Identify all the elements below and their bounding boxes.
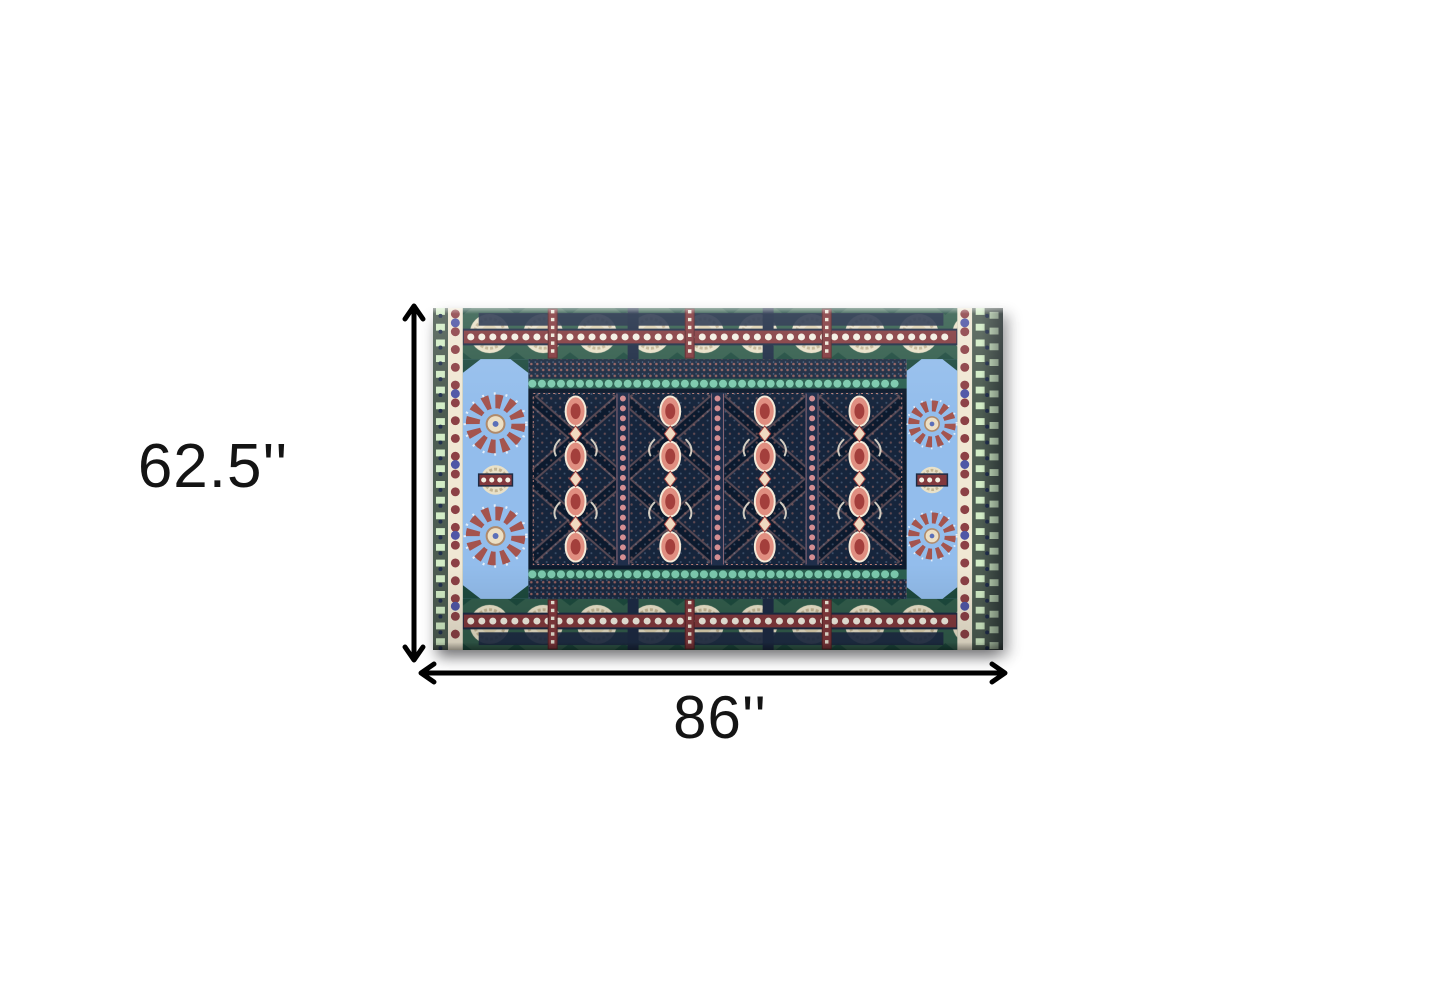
- width-dimension-label: 86'': [640, 688, 800, 748]
- height-dimension-arrow: [401, 302, 427, 664]
- vertical-double-arrow-icon: [405, 306, 423, 660]
- product-dimension-diagram: 62.5'' 86'': [0, 0, 1445, 989]
- rug-image: [433, 308, 1003, 650]
- width-dimension-arrow: [417, 660, 1009, 686]
- rug-artwork: [433, 308, 1003, 650]
- horizontal-double-arrow-icon: [421, 664, 1005, 682]
- rug-lighting-overlay: [433, 308, 1003, 650]
- height-dimension-label: 62.5'': [123, 436, 303, 498]
